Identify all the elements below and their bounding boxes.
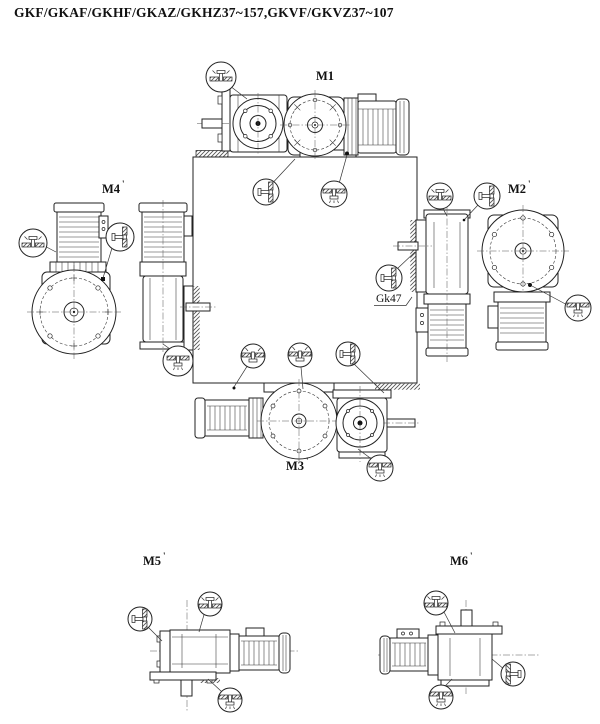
m1-motor [358,99,409,155]
m3-motor [205,400,249,436]
m1-oil-level-plug-callout [253,179,279,205]
m4-motor-front [57,212,101,262]
m4-drawing-group [19,200,216,376]
m6-oil-level-plug-callout [501,662,525,686]
m4-vent-plug-callout [19,229,47,257]
m6-gear-unit [436,610,502,686]
gk47-oil-level-plug-callout [376,265,402,291]
m1-gear-unit-side-view [196,88,292,157]
m3-oil-level-plug-callout [336,342,360,366]
m6-oil-drain-plug-callout [429,685,453,709]
m6-terminal-box [397,629,419,638]
label-m6-mark: ' [470,551,473,561]
label-m5-mark: ' [163,551,166,561]
m4-oil-drain-plug-callout [163,346,193,376]
label-m3: M3 [286,459,304,473]
label-m4-mark: ' [122,179,125,189]
m5-terminal-box [246,628,264,636]
m5-drawing-group [128,592,298,712]
m2-terminal-box [416,308,428,332]
m5-motor [230,628,290,673]
m4-oil-level-plug-callout [106,223,134,251]
m6-fan-cowl [380,636,390,674]
m6-output-shaft [461,610,472,626]
catalog-page: GKF/GKAF/GKHF/GKAZ/GKHZ37~157,GKVF/GKVZ3… [0,0,600,724]
m5-oil-drain-plug-callout [218,688,242,712]
label-m4: M4 [102,182,121,196]
label-m2: M2 [508,182,526,196]
m6-drawing-group [378,591,540,709]
mounting-positions-diagram: M1 M2 ' M3 ' M4 ' M5 ' M6 ' Gk47 [0,0,600,724]
m1-gear-unit-front-view [280,90,409,159]
label-m2-mark: ' [528,179,531,189]
m5-vent-plug-callout [198,592,222,616]
m2-oil-drain-plug-callout [565,295,591,321]
label-m1: M1 [316,69,334,83]
m5-oil-level-plug-callout [128,607,152,631]
m2-drawing-group [374,183,591,362]
m6-motor [380,629,438,675]
label-m3-mark: ' [306,456,309,466]
m1-oil-drain-plug-callout [321,181,347,207]
m3-vent-plug-callout-2 [288,343,312,367]
label-m6: M6 [450,554,468,568]
m3-vent-plug-callout-1 [241,344,265,368]
m3-gear-unit-front-view [195,379,341,463]
m2-gear-unit-side-view [393,206,470,362]
m2-gear-unit-front-view [477,205,569,350]
m3-gear-unit-side-view [333,384,420,462]
m1-vent-plug-callout [206,62,236,92]
m1-fan-cowl [396,99,409,155]
label-m5: M5 [143,554,161,568]
m4-gear-unit-side-view [139,200,216,352]
m1-drawing-group [196,62,409,207]
m5-gear-unit [150,630,230,696]
m5-fan-cowl [279,633,290,673]
m6-vent-plug-callout [424,591,448,615]
m4-gear-unit-front-view [27,203,121,359]
m2-vent-plug-callout [427,183,453,209]
m2-motor-front [496,302,548,350]
m3-oil-drain-plug-callout [367,455,393,481]
m5-output-shaft [181,680,192,696]
label-gk47: Gk47 [376,293,402,305]
m3-fan-cowl [195,398,205,438]
